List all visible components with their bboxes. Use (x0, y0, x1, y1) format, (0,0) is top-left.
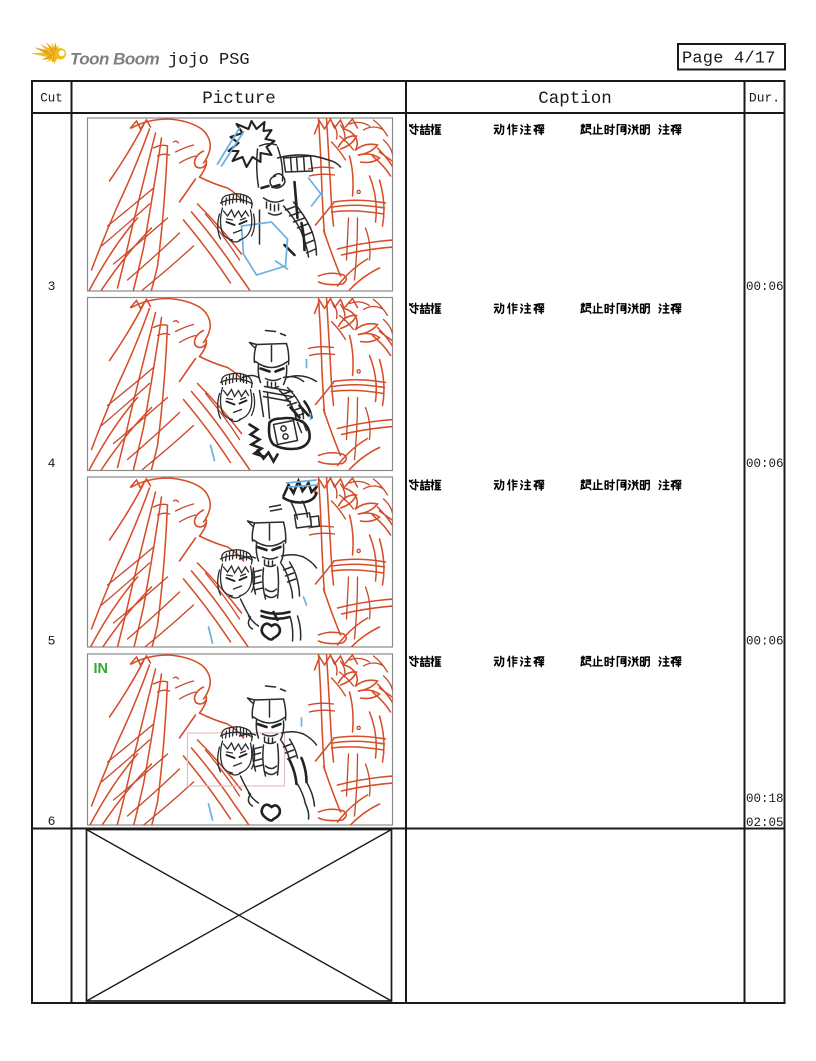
svg-text:00:06: 00:06 (746, 457, 784, 471)
svg-text:Toon Boom: Toon Boom (70, 50, 160, 69)
svg-text:Cut: Cut (40, 92, 63, 106)
svg-text:Picture: Picture (202, 89, 276, 109)
svg-text:4: 4 (48, 456, 56, 471)
svg-text:3: 3 (48, 279, 56, 294)
svg-text:00:06: 00:06 (746, 635, 784, 649)
svg-text:02:05: 02:05 (746, 816, 784, 830)
svg-text:5: 5 (48, 634, 56, 649)
svg-text:IN: IN (94, 661, 109, 677)
svg-text:6: 6 (48, 814, 56, 829)
svg-text:00:06: 00:06 (746, 280, 784, 294)
svg-text:Caption: Caption (538, 89, 612, 109)
svg-text:00:18: 00:18 (746, 792, 784, 806)
svg-text:Dur.: Dur. (749, 91, 780, 106)
svg-text:jojo PSG: jojo PSG (168, 51, 250, 70)
svg-text:Page 4/17: Page 4/17 (682, 50, 776, 69)
